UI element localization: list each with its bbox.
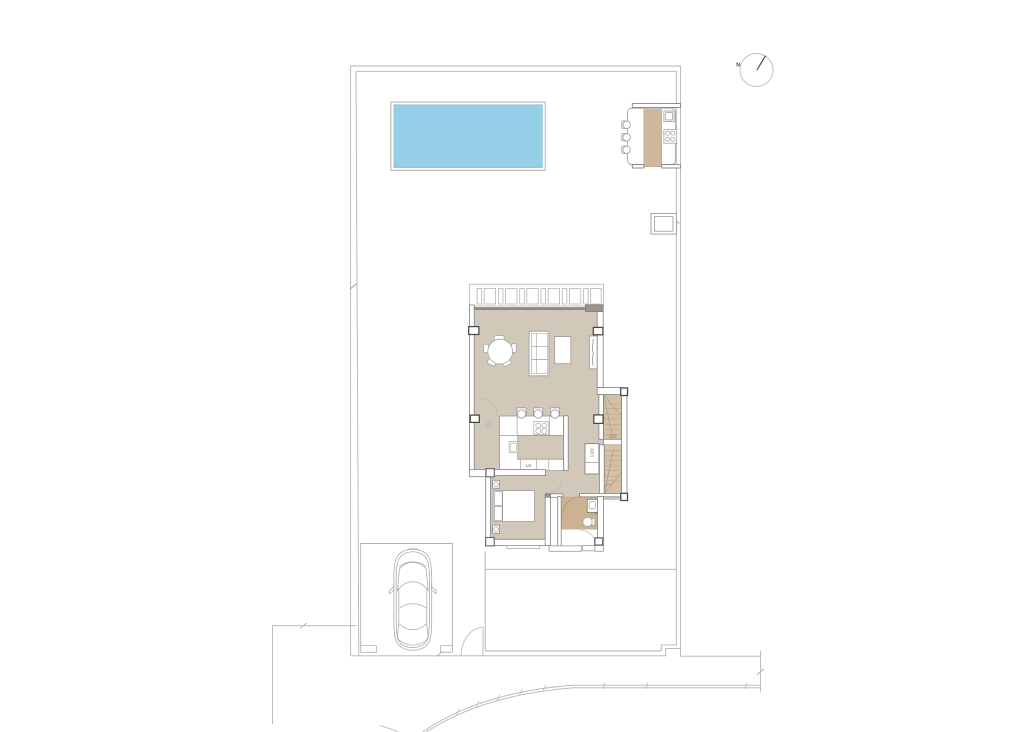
svg-text:LVD: LVD — [590, 448, 595, 456]
svg-text:N: N — [736, 62, 740, 68]
svg-text:LV: LV — [526, 463, 532, 468]
